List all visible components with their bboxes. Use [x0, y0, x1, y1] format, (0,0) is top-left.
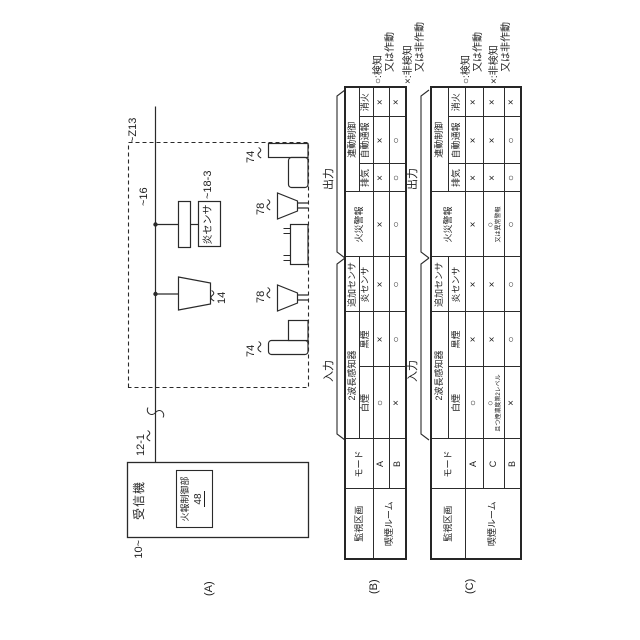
- legend-nondetect-line1: ×:非検知: [490, 45, 500, 84]
- hdr-fire-alarm: 火災警報: [431, 192, 465, 257]
- cell-exhaust: ×: [483, 164, 504, 192]
- hdr-white: 白煙: [448, 367, 465, 439]
- duct-unit-symbol: [284, 225, 309, 265]
- nozzle-78-left-symbol: [267, 285, 308, 311]
- hdr-black: 黒煙: [448, 312, 465, 367]
- cell-fire-alarm: ×: [373, 192, 389, 257]
- cell-auto-report: ○: [389, 117, 406, 164]
- brace-input-c: [421, 258, 429, 440]
- cell-flame: ×: [373, 257, 389, 312]
- speaker-ref-right: 74: [246, 151, 257, 163]
- controller-ref-number: 48: [193, 491, 205, 506]
- output-label-b: 出力: [324, 168, 335, 190]
- mode-table-b: 監視区画 モード 2波長感知器 追加センサ 火災警報 連動制御 白煙 黒煙 炎セ…: [344, 86, 407, 560]
- nozzle-ref-left: 78: [256, 291, 267, 303]
- receiver-ref: 10~: [134, 540, 145, 574]
- cell-flame: ○: [389, 257, 406, 312]
- cell-black: ×: [483, 312, 504, 367]
- hdr-interlock: 連動制御: [345, 87, 359, 192]
- cell-fire-alarm-mark: ○: [486, 192, 495, 256]
- hdr-detector2wl: 2波長感知器: [345, 312, 359, 439]
- cell-extinguish: ×: [465, 87, 483, 117]
- cell-mode: B: [389, 439, 406, 489]
- signal-line: [147, 388, 164, 463]
- figure-linework: [0, 0, 640, 640]
- cell-white: ×: [389, 367, 406, 439]
- cell-mode: C: [483, 439, 504, 489]
- speaker-74-left-symbol: [258, 321, 308, 355]
- flame-sensor-ref: ~18-3: [203, 171, 214, 199]
- cell-black: ○: [389, 312, 406, 367]
- hdr-auto-report: 自動通報: [359, 117, 373, 164]
- hdr-black: 黒煙: [359, 312, 373, 367]
- cell-black: ○: [504, 312, 521, 367]
- brace-output-c: [421, 90, 429, 258]
- cell-exhaust: ○: [504, 164, 521, 192]
- hdr-white: 白煙: [359, 367, 373, 439]
- cell-flame: ×: [465, 257, 483, 312]
- hdr-added-sensor: 追加センサ: [431, 257, 448, 312]
- cell-fire-alarm: ○: [504, 192, 521, 257]
- cell-extinguish: ×: [389, 87, 406, 117]
- cell-white-annotated: ○ 且つ煙濃度第2レベル: [483, 367, 504, 439]
- legend-detect-line2: 又は作動: [474, 32, 484, 72]
- cell-extinguish: ×: [504, 87, 521, 117]
- table-row: B × ○ ○ ○ ○ ○ ×: [504, 87, 521, 559]
- legend-detect-line1: ○:検知: [462, 55, 472, 84]
- cell-mode: B: [504, 439, 521, 489]
- table-row: C ○ 且つ煙濃度第2レベル × × ○ 又は異常警報 × × ×: [483, 87, 504, 559]
- cell-white-mark: ○: [486, 368, 495, 439]
- hdr-flame: 炎センサ: [448, 257, 465, 312]
- table-row: B × ○ ○ ○ ○ ○ ×: [389, 87, 406, 559]
- cell-extinguish: ×: [483, 87, 504, 117]
- cell-black: ×: [465, 312, 483, 367]
- cell-auto-report: ○: [504, 117, 521, 164]
- receiver-title: 受信機: [133, 463, 145, 538]
- cell-white: ×: [504, 367, 521, 439]
- legend-detect-line2: 又は作動: [386, 32, 396, 72]
- cell-black: ×: [373, 312, 389, 367]
- hdr-zone: 監視区画: [431, 489, 465, 559]
- zone-bus-line: [153, 107, 157, 388]
- receiver-box: [128, 463, 309, 538]
- controller-title: 火報制御部: [181, 471, 190, 527]
- panel-a-label: (A): [204, 581, 215, 596]
- legend-detect-line1: ○:検知: [374, 55, 384, 84]
- cell-mode: A: [373, 439, 389, 489]
- legend-nondetect-line2: 又は非作動: [502, 22, 512, 72]
- legend-nondetect-line2: 又は非作動: [416, 22, 426, 72]
- table-row: 喫煙ルーム A ○ × × × × × ×: [465, 87, 483, 559]
- speaker-ref-left: 74: [246, 345, 257, 357]
- controller-ref: 48: [194, 471, 204, 527]
- cell-flame: ×: [483, 257, 504, 312]
- hdr-exhaust: 排気: [448, 164, 465, 192]
- hdr-mode: モード: [431, 439, 465, 489]
- hdr-added-sensor: 追加センサ: [345, 257, 359, 312]
- hdr-extinguish: 消火: [359, 87, 373, 117]
- speaker-74-right-symbol: [258, 144, 308, 188]
- nozzle-ref-right: 78: [256, 203, 267, 215]
- cell-fire-alarm: ×: [465, 192, 483, 257]
- detector-ref: 14: [217, 292, 228, 304]
- cell-exhaust: ×: [465, 164, 483, 192]
- cell-white-note: 且つ煙濃度第2レベル: [496, 368, 502, 439]
- input-label-b: 入力: [324, 360, 335, 382]
- zone-ref: ~Z13: [128, 118, 139, 143]
- output-label-c: 出力: [408, 168, 419, 190]
- cell-white: ○: [465, 367, 483, 439]
- cell-fire-alarm: ○: [389, 192, 406, 257]
- cell-flame: ○: [504, 257, 521, 312]
- hdr-exhaust: 排気: [359, 164, 373, 192]
- cell-zone: 喫煙ルーム: [465, 489, 521, 559]
- patent-figure-page: (A) 10~ 受信機 火報制御部 48 12-1 ~Z13 ~16 炎センサ …: [0, 0, 640, 640]
- cell-auto-report: ×: [465, 117, 483, 164]
- cell-fire-alarm-note: 又は異常警報: [496, 192, 502, 256]
- hdr-flame: 炎センサ: [359, 257, 373, 312]
- cell-extinguish: ×: [373, 87, 389, 117]
- flame-sensor-label: 炎センサ: [204, 202, 214, 247]
- panel-b-label: (B): [369, 579, 380, 594]
- panel-c-label: (C): [465, 579, 476, 594]
- hdr-zone: 監視区画: [345, 489, 373, 559]
- cell-auto-report: ×: [483, 117, 504, 164]
- mode-table-c: 監視区画 モード 2波長感知器 追加センサ 火災警報 連動制御 白煙 黒煙 炎セ…: [430, 86, 522, 560]
- hdr-extinguish: 消火: [448, 87, 465, 117]
- hdr-detector2wl: 2波長感知器: [431, 312, 448, 439]
- hdr-mode: モード: [345, 439, 373, 489]
- hdr-interlock: 連動制御: [431, 87, 448, 192]
- legend-nondetect-line1: ×:非検知: [404, 45, 414, 84]
- base-ref: ~16: [139, 187, 150, 206]
- table-row: 監視区画 モード 2波長感知器 追加センサ 火災警報 連動制御: [431, 87, 448, 559]
- table-row: 監視区画 モード 2波長感知器 追加センサ 火災警報 連動制御: [345, 87, 359, 559]
- cell-fire-alarm-annotated: ○ 又は異常警報: [483, 192, 504, 257]
- input-label-c: 入力: [408, 360, 419, 382]
- hdr-auto-report: 自動通報: [448, 117, 465, 164]
- nozzle-78-right-symbol: [267, 193, 308, 219]
- hdr-fire-alarm: 火災警報: [345, 192, 373, 257]
- cell-exhaust: ×: [373, 164, 389, 192]
- line-ref: 12-1: [136, 434, 147, 456]
- upright-figure: (A) 10~ 受信機 火報制御部 48 12-1 ~Z13 ~16 炎センサ …: [0, 0, 640, 640]
- cell-mode: A: [465, 439, 483, 489]
- cell-auto-report: ×: [373, 117, 389, 164]
- detector-14-symbol: [156, 277, 215, 310]
- cell-white: ○: [373, 367, 389, 439]
- cell-exhaust: ○: [389, 164, 406, 192]
- table-row: 喫煙ルーム A ○ × × × × × ×: [373, 87, 389, 559]
- cell-zone: 喫煙ルーム: [373, 489, 406, 559]
